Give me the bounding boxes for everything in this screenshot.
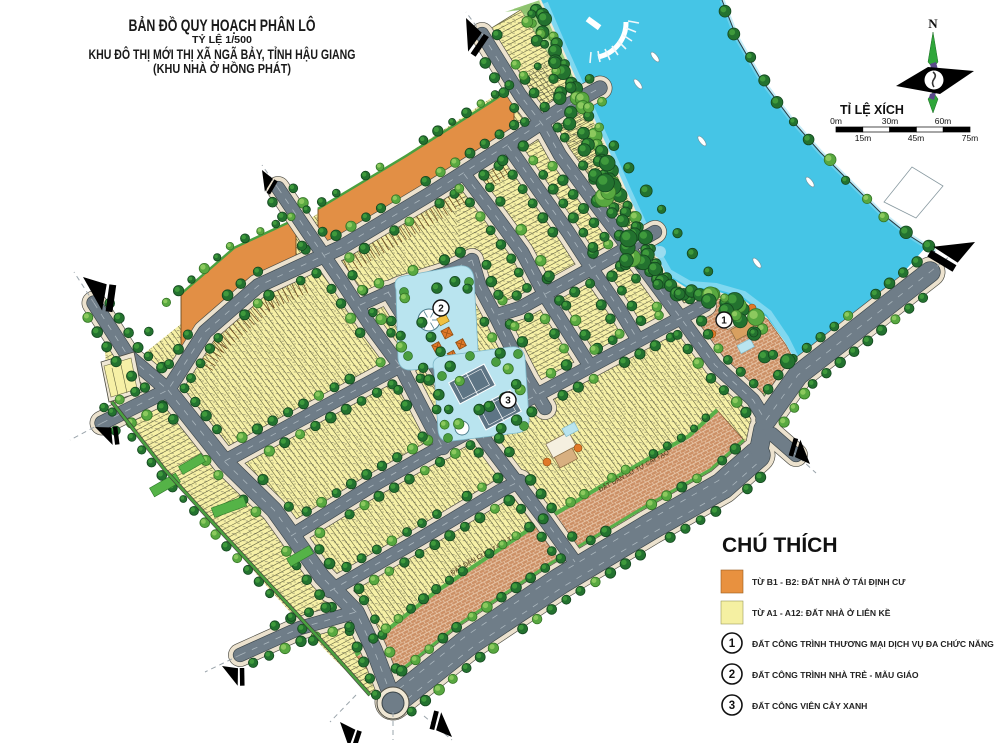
svg-text:ĐẤT CÔNG TRÌNH NHÀ TRẺ - MẪU G: ĐẤT CÔNG TRÌNH NHÀ TRẺ - MẪU GIÁO <box>752 669 919 680</box>
svg-text:TỪ A1 - A12: ĐẤT NHÀ Ở LIÊN KỀ: TỪ A1 - A12: ĐẤT NHÀ Ở LIÊN KỀ <box>752 607 891 618</box>
svg-text:TỪ B1 - B2: ĐẤT NHÀ Ở TÁI ĐỊNH: TỪ B1 - B2: ĐẤT NHÀ Ở TÁI ĐỊNH CƯ <box>752 576 906 587</box>
svg-text:2: 2 <box>729 669 735 681</box>
svg-text:CHÚ THÍCH: CHÚ THÍCH <box>722 533 838 557</box>
svg-text:KHU ĐÔ THỊ MỚI THỊ XÃ NGÃ BẢY,: KHU ĐÔ THỊ MỚI THỊ XÃ NGÃ BẢY, TỈNH HẬU … <box>89 45 356 62</box>
svg-text:N: N <box>928 16 938 31</box>
svg-text:(KHU NHÀ Ở HỒNG PHÁT): (KHU NHÀ Ở HỒNG PHÁT) <box>153 61 291 76</box>
svg-text:1: 1 <box>729 638 736 650</box>
svg-text:60m: 60m <box>935 116 952 126</box>
svg-text:TỶ LỆ 1/500: TỶ LỆ 1/500 <box>192 33 252 46</box>
svg-text:ĐẤT CÔNG VIÊN CÂY XANH: ĐẤT CÔNG VIÊN CÂY XANH <box>752 700 867 711</box>
svg-text:45m: 45m <box>908 133 925 143</box>
svg-text:BẢN ĐỒ QUY HOẠCH PHÂN LÔ: BẢN ĐỒ QUY HOẠCH PHÂN LÔ <box>129 16 316 35</box>
svg-text:3: 3 <box>505 396 511 407</box>
svg-text:0m: 0m <box>830 116 842 126</box>
svg-text:15m: 15m <box>855 133 872 143</box>
svg-text:30m: 30m <box>882 116 899 126</box>
svg-text:3: 3 <box>729 700 735 712</box>
svg-text:75m: 75m <box>962 133 979 143</box>
svg-text:2: 2 <box>438 304 444 315</box>
svg-text:ĐẤT CÔNG TRÌNH THƯƠNG MẠI DỊCH: ĐẤT CÔNG TRÌNH THƯƠNG MẠI DỊCH VỤ ĐA CHỨ… <box>752 638 994 649</box>
svg-text:TỈ LỆ XÍCH: TỈ LỆ XÍCH <box>840 102 904 117</box>
svg-text:1: 1 <box>721 316 727 327</box>
